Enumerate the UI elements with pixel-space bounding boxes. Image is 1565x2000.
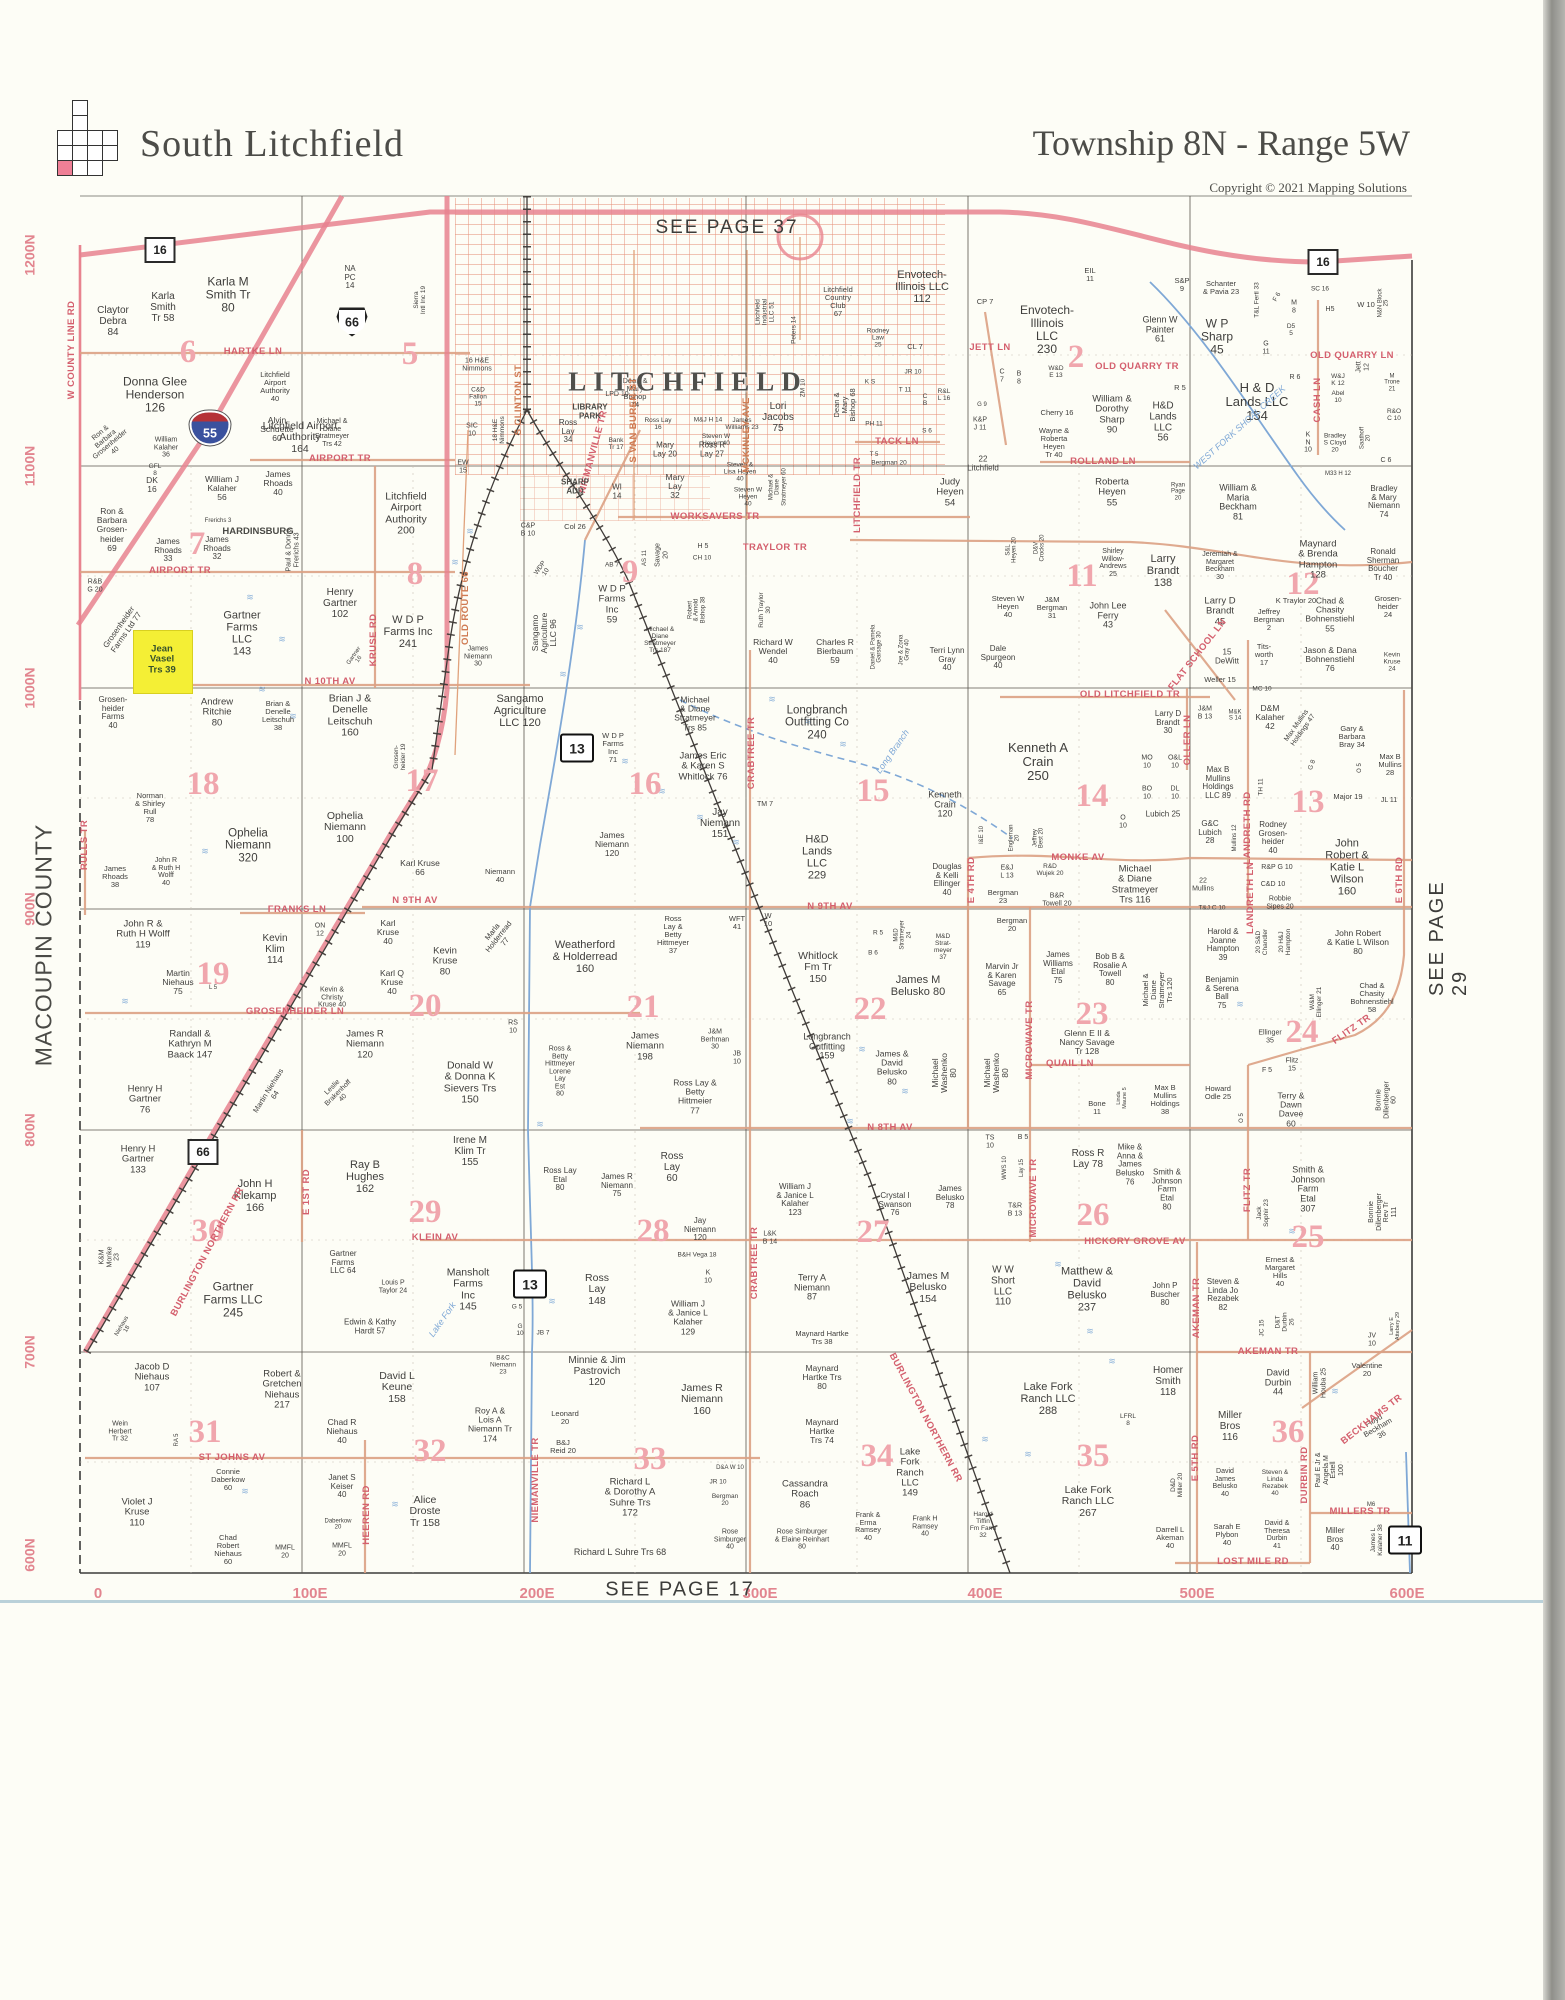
parcel-label: Ross Lay & Betty Hittmeyer 37 <box>657 915 689 955</box>
section-number: 16 <box>629 767 662 803</box>
parcel-label: B 8 <box>1017 370 1022 385</box>
parcel-label: Dale Spurgeon 40 <box>981 645 1016 671</box>
parcel-label: Steven & Linda Rezabek 40 <box>1262 1469 1288 1497</box>
road-label: S VAN BUREN ST <box>629 377 639 462</box>
parcel-label: O&L 10 <box>1168 754 1182 769</box>
parcel-label: WFT 41 <box>729 915 745 931</box>
parcel-label: Ross Lay & Betty Hittmeier 77 <box>673 1079 716 1116</box>
road-label: OLD ROUTE 66 <box>461 571 471 645</box>
parcel-label: N&N Block 25 <box>1378 288 1391 317</box>
marsh-symbol: ≋ <box>451 558 459 568</box>
locator-cell <box>72 160 88 176</box>
parcel-label: Terry & Dawn Davee 60 <box>1278 1092 1305 1129</box>
marsh-symbol: ≋ <box>548 1297 556 1307</box>
parcel-label: Cherry 16 <box>1041 409 1074 417</box>
parcel-label: S 6 <box>922 427 932 434</box>
parcel-label: Bradley & Mary Niemann 74 <box>1368 485 1400 520</box>
grid-label-left: 1200N <box>22 234 37 275</box>
road-label: MILLERS TR <box>1330 1507 1391 1517</box>
see-page-bottom: SEE PAGE 17 <box>605 1579 754 1602</box>
parcel-label: James & David Belusko 80 <box>875 1050 908 1087</box>
road-label: HARTKE LN <box>224 347 283 357</box>
parcel-label: Michael & Diane Stratmeyer Trs 120 <box>1142 972 1174 1009</box>
parcel-label: Henry H Gartner 133 <box>121 1145 156 1176</box>
section-number: 29 <box>409 1195 442 1231</box>
parcel-label: D&D Miller 20 <box>1170 1473 1184 1498</box>
parcel-label: JB 10 <box>733 1050 741 1065</box>
parcel-label: Ray B Hughes 162 <box>346 1160 384 1196</box>
road-label: N 9TH AV <box>392 896 437 906</box>
parcel-label: Rodney Law 25 <box>867 327 889 348</box>
parcel-label: Bergman 23 <box>988 889 1018 905</box>
section-number: 32 <box>414 1434 447 1470</box>
see-page-right: SEE PAGE 29 <box>1426 880 1472 996</box>
parcel-label: Wein Herbert Tr 32 <box>108 1421 131 1444</box>
parcel-label: G&C Lubich 28 <box>1198 820 1222 846</box>
parcel-label: Ronald Sherman Boucher Tr 40 <box>1367 548 1399 583</box>
parcel-label: David James Belusko 40 <box>1213 1468 1238 1498</box>
road-label: FLITZ TR <box>1243 1168 1253 1212</box>
highlighted-parcel-label: Jean Vasel Trs 39 <box>148 645 175 676</box>
parcel-label: Robbie Sipes 20 <box>1266 895 1293 910</box>
section-number: 25 <box>1292 1220 1325 1256</box>
parcel-label: Jay Niemann 151 <box>700 808 740 840</box>
locator-cell <box>57 145 73 161</box>
parcel-label: RS 10 <box>508 1019 518 1034</box>
parcel-label: MMFL 20 <box>275 1544 295 1559</box>
parcel-label: Kenneth A Crain 250 <box>1008 741 1068 783</box>
road-label: S CLINTON ST <box>514 365 524 436</box>
scan-edge-artifact <box>1543 0 1565 2000</box>
parcel-label: Cassandra Roach 86 <box>782 1480 828 1511</box>
parcel-label: Karl Q Kruse 40 <box>380 969 404 997</box>
county-locator-icon <box>57 100 137 195</box>
marsh-symbol: ≋ <box>246 593 254 603</box>
parcel-label: T&L Fertl 33 <box>1253 282 1260 318</box>
parcel-label: John Lee Ferry 43 <box>1089 601 1126 630</box>
parcel-label: Connie Daberkow 60 <box>211 1468 245 1492</box>
locator-cell <box>72 115 88 131</box>
grid-label-left: 600N <box>22 1538 37 1571</box>
route-shield-66: 66 <box>188 1139 219 1165</box>
marsh-symbol: ≋ <box>1331 1387 1339 1397</box>
parcel-label: AS 11 <box>642 550 648 566</box>
route-shield-11: 11 <box>1388 1526 1422 1555</box>
parcel-label: Engleman 20 <box>1009 824 1022 851</box>
parcel-label: Larry D Brandt 30 <box>1155 710 1181 736</box>
parcel-label: Karla Smith Tr 58 <box>150 292 176 324</box>
parcel-label: Lake Fork Ranch LLC 149 <box>896 1447 923 1498</box>
parcel-label: Randall & Kathryn M Baack 147 <box>168 1030 213 1061</box>
road-label: E 6TH RD <box>1395 857 1405 903</box>
parcel-label: M 8 <box>1291 299 1297 314</box>
parcel-label: Kenneth Crain 120 <box>928 790 962 819</box>
parcel-label: O 5 <box>1239 1113 1245 1123</box>
parcel-label: Brian & Denelle Leitschuh 38 <box>262 700 294 732</box>
parcel-label: K&P J 11 <box>973 416 987 431</box>
parcel-label: G 5 <box>512 1303 522 1310</box>
locator-cell <box>57 160 73 176</box>
parcel-label: Harold & Joanne Hampton 39 <box>1207 928 1239 963</box>
parcel-label: Chad Robert Niehaus 60 <box>214 1534 242 1566</box>
parcel-label: Bergman 20 <box>997 917 1027 933</box>
marsh-symbol: ≋ <box>201 847 209 857</box>
parcel-label: Steven W Heyen 40 <box>734 486 762 507</box>
road-label: AIRPORT TR <box>309 454 371 464</box>
parcel-label: Mike & Anna & James Belusko 76 <box>1116 1143 1144 1186</box>
parcel-label: Matthew & David Belusko 237 <box>1061 1266 1113 1314</box>
parcel-label: Litchfield Country Club 67 <box>823 286 853 318</box>
parcel-label: James L Kalaher 38 <box>1370 1524 1384 1555</box>
parcel-label: Maynard & Brenda Hampton 128 <box>1298 540 1338 581</box>
parcel-label: Edwin & Kathy Hardt 57 <box>344 1318 396 1335</box>
parcel-label: H&D Lands LLC 229 <box>802 834 832 882</box>
parcel-label: Robert & Arnold Bishop 38 <box>687 597 706 624</box>
parcel-label: Crystal I Swanson 76 <box>879 1192 912 1218</box>
marsh-symbol: ≋ <box>1108 1357 1116 1367</box>
parcel-label: William J & Janice L Kalaher 129 <box>668 1300 708 1337</box>
parcel-label: Jay Niemann 120 <box>684 1217 716 1243</box>
parcel-label: Violet J Kruse 110 <box>122 1498 153 1529</box>
road-label: NIEMANVILLE TR <box>531 1437 541 1522</box>
road-label: W COUNTY LINE RD <box>67 301 77 400</box>
section-number: 34 <box>861 1439 894 1475</box>
parcel-label: Donald W & Donna K Sievers Trs 150 <box>444 1060 497 1105</box>
parcel-label: James Rhoads 40 <box>263 470 292 498</box>
parcel-label: William J & Janice L Kalaher 123 <box>776 1183 813 1218</box>
parcel-label: TH 11 <box>1257 778 1264 795</box>
road-label: E 5TH RD <box>1191 1435 1201 1481</box>
parcel-label: Bank Tr 17 <box>609 437 624 451</box>
parcel-label: Charles R Bierbaum 59 <box>816 638 854 666</box>
parcel-label: Ross Lay 34 <box>559 419 577 445</box>
parcel-label: Sierra Intl Inc 19 <box>413 286 427 314</box>
parcel-label: Joe & Zona Gray 40 <box>899 635 912 666</box>
parcel-label: Glenn W Painter 61 <box>1142 315 1177 344</box>
parcel-label: Glenn E II & Nancy Savage Tr 128 <box>1059 1029 1114 1057</box>
parcel-label: H&D Lands LLC 56 <box>1149 401 1176 444</box>
route-shield-13: 13 <box>513 1270 547 1299</box>
parcel-label: I&E 10 <box>979 826 985 844</box>
parcel-label: 20 S&D Chandler <box>1255 929 1269 955</box>
parcel-label: Kevin Kruse 24 <box>1384 651 1401 672</box>
parcel-label: Miller Bros 40 <box>1325 1527 1344 1553</box>
section-number: 22 <box>854 992 887 1028</box>
road-label: MCKINLEY AVE <box>742 397 752 472</box>
parcel-label: 20 H&J Hampton <box>1278 929 1292 955</box>
section-number: 13 <box>1292 785 1325 821</box>
parcel-label: B&H Vega 18 <box>677 1251 716 1258</box>
county-edge-label: MACOUPIN COUNTY <box>31 824 58 1066</box>
parcel-label: CP 7 <box>977 298 994 306</box>
parcel-label: T&R B 13 <box>1008 1202 1022 1217</box>
parcel-label: NA PC 14 <box>344 265 355 291</box>
parcel-label: Grosen- heider Farms 40 <box>99 696 128 731</box>
parcel-label: T 11 <box>899 386 911 393</box>
marsh-symbol: ≋ <box>981 1435 989 1445</box>
parcel-label: Max B Mullins Holdings LLC 89 <box>1202 766 1233 801</box>
parcel-label: Lake Fork Ranch LLC 267 <box>1062 1485 1115 1519</box>
parcel-label: Whitlock Fm Tr 150 <box>798 951 838 985</box>
road-label: JETT LN <box>969 343 1010 353</box>
section-number: 36 <box>1272 1415 1305 1451</box>
parcel-label: Sarah E Plybon 40 <box>1213 1523 1240 1547</box>
road-label: KLEIN AV <box>412 1233 458 1243</box>
road-label: E 1ST RD <box>302 1169 312 1215</box>
parcel-label: B&C Niemann 23 <box>490 1354 516 1375</box>
road-label: CASH LN <box>1313 377 1323 422</box>
parcel-label: James Niemann 198 <box>626 1032 664 1063</box>
parcel-label: Jason & Dana Bohnenstiehl 76 <box>1303 646 1356 674</box>
parcel-label: Mullins 12 <box>1232 824 1238 851</box>
parcel-label: Frank H Ramsey 40 <box>912 1516 938 1539</box>
road-label: OLLER LN <box>1183 715 1193 766</box>
parcel-label: James Eric & Karen S Whitlock 76 <box>678 752 727 783</box>
parcel-label: Rose Simburger & Elaine Reinhart 80 <box>775 1529 829 1552</box>
parcel-label: JR 10 <box>710 1478 727 1485</box>
marsh-symbol: ≋ <box>576 623 584 633</box>
parcel-label: Litchfield Airport Authority 40 <box>260 371 290 403</box>
marsh-symbol: ≋ <box>278 635 286 645</box>
section-number: 35 <box>1077 1439 1110 1475</box>
parcel-label: William Kalaher 36 <box>154 437 178 460</box>
parcel-label: Michael & Diane Stratmeyer Trs 85 <box>674 696 716 733</box>
parcel-label: MMFL 20 <box>332 1542 352 1557</box>
marsh-symbol: ≋ <box>858 1045 866 1055</box>
parcel-label: James M Belusko 80 <box>891 975 945 999</box>
parcel-label: JL 11 <box>1381 797 1397 805</box>
parcel-label: Michael & Diane Stratmeyer 60 <box>768 468 787 506</box>
parcel-label: Tits- worth 17 <box>1255 643 1273 667</box>
route-shield-13: 13 <box>560 734 594 763</box>
parcel-label: Richard W Wendel 40 <box>753 638 793 666</box>
parcel-label: W&J K 12 <box>1331 373 1345 387</box>
parcel-label: Steven W Heyen 40 <box>992 595 1025 619</box>
parcel-label: Maynard Hartke Trs 38 <box>795 1330 848 1346</box>
parcel-label: Rodney Grosen- heider 40 <box>1259 821 1288 856</box>
parcel-label: Weatherford & Holderread 160 <box>553 940 618 976</box>
parcel-label: David L Keune 158 <box>379 1371 415 1405</box>
parcel-label: AB 7 <box>605 561 619 568</box>
parcel-label: James Niemann 120 <box>595 831 629 859</box>
parcel-label: John Robert & Katie L Wilson 80 <box>1327 929 1389 957</box>
parcel-label: Chad & Chasity Bohnenstiehl 58 <box>1350 982 1393 1014</box>
road-label: QUAIL LN <box>1046 1059 1094 1069</box>
parcel-label: Homer Smith 118 <box>1153 1366 1183 1398</box>
road-label: AKEMAN TR <box>1192 1278 1202 1339</box>
parcel-label: Michael Washenko 80 <box>983 1053 1011 1093</box>
parcel-label: Longbranch Outfitting Co 240 <box>785 704 849 741</box>
parcel-label: E&J L 13 <box>1000 864 1013 879</box>
parcel-label: Bergman 20 <box>712 1493 738 1507</box>
parcel-label: R 5 <box>873 929 883 936</box>
road-label: OLD LITCHFIELD TR <box>1080 690 1180 700</box>
parcel-label: JC 15 <box>1258 1320 1265 1337</box>
parcel-label: Bonnie Dillenberger 60 <box>1376 1081 1399 1119</box>
parcel-label: BO 10 <box>1142 785 1152 800</box>
section-number: 20 <box>409 989 442 1025</box>
parcel-label: K S <box>865 378 875 385</box>
parcel-label: Alvin Schuette 60 <box>260 416 294 444</box>
parcel-label: Steven & Linda Jo Rezabek 82 <box>1207 1278 1239 1313</box>
parcel-label: Bob B & Rosalie A Towell 80 <box>1093 953 1127 988</box>
parcel-label: SC 16 <box>1311 285 1329 292</box>
parcel-label: G 11 <box>1262 340 1269 355</box>
locator-cell <box>87 130 103 146</box>
parcel-label: CL 7 <box>907 343 923 351</box>
parcel-label: Jeffrey Bergman 2 <box>1254 608 1284 632</box>
parcel-label: JR 10 <box>905 368 922 375</box>
parcel-label: John P Buscher 80 <box>1150 1282 1179 1308</box>
place-label: HARDINSBURG <box>222 527 293 537</box>
parcel-label: Envotech- Illinois LLC 230 <box>1020 304 1074 356</box>
road-label: LANDRETH LN <box>1246 862 1256 934</box>
parcel-label: Ruth Traylor 30 <box>758 592 772 627</box>
parcel-label: Bradley S Cloyd 20 <box>1324 432 1347 453</box>
parcel-label: Norman & Shirley Rull 78 <box>135 792 165 824</box>
marsh-symbol: ≋ <box>1024 1450 1032 1460</box>
road-label: CRABTREE TR <box>750 1227 760 1299</box>
parcel-label: SIC 10 <box>466 422 478 437</box>
parcel-label: Sangamo Agriculture LLC 120 <box>494 694 547 730</box>
section-number: 33 <box>634 1442 667 1478</box>
parcel-label: Terry A Niemann 87 <box>794 1273 830 1302</box>
parcel-label: Miller Bros 116 <box>1218 1411 1242 1443</box>
marsh-symbol: ≋ <box>466 527 474 537</box>
parcel-label: Chad & Chasity Bohnenstiehl 55 <box>1305 597 1354 634</box>
parcel-label: Gary & Barbara Bray 34 <box>1339 725 1366 749</box>
parcel-label: Judy Heyen 54 <box>936 478 963 509</box>
parcel-label: J&M Berhman 30 <box>701 1029 729 1052</box>
parcel-label: Ross Lay Etal 80 <box>543 1167 576 1193</box>
parcel-label: W D P Farms Inc 59 <box>598 585 625 626</box>
parcel-label: Roy A & Lois A Niemann Tr 174 <box>468 1407 512 1444</box>
section-number: 21 <box>627 990 660 1026</box>
parcel-label: T 5 <box>870 452 879 458</box>
road-label: ST JOHNS AV <box>199 1453 266 1463</box>
parcel-label: C&D Fallon 15 <box>469 386 487 407</box>
parcel-label: TM 7 <box>757 801 773 809</box>
parcel-label: Kevin Kruse 80 <box>433 947 458 978</box>
marsh-symbol: ≋ <box>121 997 129 1007</box>
parcel-label: Karl Kruse 40 <box>377 919 399 947</box>
marsh-symbol: ≋ <box>1086 1327 1094 1337</box>
parcel-label: Minnie & Jim Pastrovich 120 <box>568 1356 625 1388</box>
parcel-label: Daniel & Pamela Garsage 30 <box>871 625 884 670</box>
parcel-label: Abel 10 <box>1331 390 1344 404</box>
parcel-label: M33 H 12 <box>1325 471 1351 477</box>
road-label: ROLLAND LN <box>1070 457 1136 467</box>
parcel-label: DK 16 <box>146 476 158 494</box>
road-label: TACK LN <box>875 437 919 447</box>
locator-cell <box>72 130 88 146</box>
locator-cell <box>57 130 73 146</box>
road-label: TRAYLOR TR <box>743 543 807 553</box>
parcel-label: Ross Lay 148 <box>585 1273 609 1307</box>
parcel-label: Flitz 15 <box>1286 1057 1299 1072</box>
parcel-label: Karla M Smith Tr 80 <box>206 276 251 315</box>
parcel-label: Bergman 20 <box>871 459 906 466</box>
parcel-label: R&P G 10 <box>1261 864 1292 872</box>
parcel-label: Mary Lay 20 <box>653 441 677 458</box>
section-number: 26 <box>1077 1198 1110 1234</box>
parcel-label: Gartner Farms LLC 245 <box>203 1281 262 1320</box>
parcel-label: Henry Gartner 102 <box>323 588 357 620</box>
parcel-label: Weller 15 <box>1204 676 1236 684</box>
parcel-label: Max B Mullins Holdings 38 <box>1150 1084 1179 1116</box>
parcel-label: W D P Farms Inc 241 <box>384 615 433 651</box>
parcel-label: C&D 10 <box>1261 881 1286 889</box>
parcel-label: Marvin Jr & Karen Savage 65 <box>986 963 1019 998</box>
parcel-label: Douglas & Kelli Ellinger 40 <box>932 863 961 898</box>
place-label: SHARP ADD <box>561 478 589 495</box>
grid-label-left: 1000N <box>22 667 37 708</box>
parcel-label: Valentine 20 <box>1352 1362 1383 1378</box>
road-label: FRANKS LN <box>268 905 327 915</box>
parcel-label: Rose Simburger 40 <box>714 1529 746 1552</box>
parcel-label: James R Niemann 75 <box>601 1173 633 1199</box>
parcel-label: Paul E Jr & Angela M Estell 100 <box>1315 1452 1345 1487</box>
parcel-label: K&M Monke 23 <box>99 1246 122 1267</box>
section-number: 14 <box>1076 779 1109 815</box>
parcel-label: G 9 <box>977 402 987 408</box>
grid-label-left: 800N <box>22 1113 37 1146</box>
parcel-label: Maynard Hartke Trs 80 <box>802 1364 841 1392</box>
route-shield-16: 16 <box>1308 249 1339 275</box>
parcel-label: William & Maria Beckham 81 <box>1219 484 1257 523</box>
parcel-label: W D P Farms Inc 71 <box>602 732 624 764</box>
parcel-label: K 10 <box>704 1269 712 1284</box>
parcel-label: Litchfield Airport Authority 200 <box>385 491 426 536</box>
parcel-label: Frank & Erma Ramsey 40 <box>855 1512 881 1542</box>
parcel-label: MO 10 <box>1141 754 1152 769</box>
road-label: OLD QUARRY TR <box>1095 362 1179 372</box>
parcel-label: C B <box>923 393 928 407</box>
parcel-label: MC 10 <box>1252 685 1271 692</box>
parcel-label: Andrew Ritchie 80 <box>201 698 233 729</box>
road-label: DURBIN RD <box>1300 1447 1310 1504</box>
section-number: 28 <box>637 1214 670 1250</box>
parcel-label: Smith & Johnson Farm Etal 80 <box>1152 1168 1182 1211</box>
parcel-label: Robert & Gretchen Niehaus 217 <box>262 1370 301 1411</box>
parcel-label: WI 14 <box>612 483 622 500</box>
parcel-label: Michael Washenko 80 <box>931 1053 959 1093</box>
parcel-label: LFRL 8 <box>1120 1413 1136 1427</box>
parcel-label: Major 19 <box>1333 793 1362 801</box>
parcel-label: Darrell L Akeman 40 <box>1156 1526 1184 1550</box>
parcel-label: Ross & Betty Hittmeyer Lorene Lay Est 80 <box>545 1046 575 1099</box>
parcel-label: Benjamin & Serena Ball 75 <box>1205 976 1238 1011</box>
parcel-label: Savage 20 <box>654 543 669 567</box>
parcel-label: 22 Litchfield <box>967 455 999 472</box>
parcel-label: W 10 <box>764 912 772 928</box>
grid-label-left: 1100N <box>22 446 37 486</box>
parcel-label: JV 10 <box>1368 1332 1376 1347</box>
section-number: 27 <box>857 1215 890 1251</box>
parcel-label: David & Theresa Durbin 41 <box>1264 1520 1290 1550</box>
road-label: AKEMAN TR <box>1238 1347 1299 1357</box>
road-label: E 4TH RD <box>967 857 977 903</box>
parcel-label: Saathoff 20 <box>1360 427 1373 449</box>
parcel-label: Schanter & Pavia 23 <box>1203 280 1239 296</box>
road-label: MICROWAVE TR <box>1029 1158 1039 1237</box>
parcel-label: Howard Odle 25 <box>1205 1085 1231 1101</box>
parcel-label: R&D Wujek 20 <box>1037 863 1064 877</box>
parcel-label: Michael & Diane Stratmeyer Trs 42 <box>315 418 349 448</box>
parcel-label: B&J Reid 20 <box>550 1439 576 1455</box>
road-label: MONKE AV <box>1051 853 1104 863</box>
road-label: LOST MILE RD <box>1217 1557 1289 1567</box>
